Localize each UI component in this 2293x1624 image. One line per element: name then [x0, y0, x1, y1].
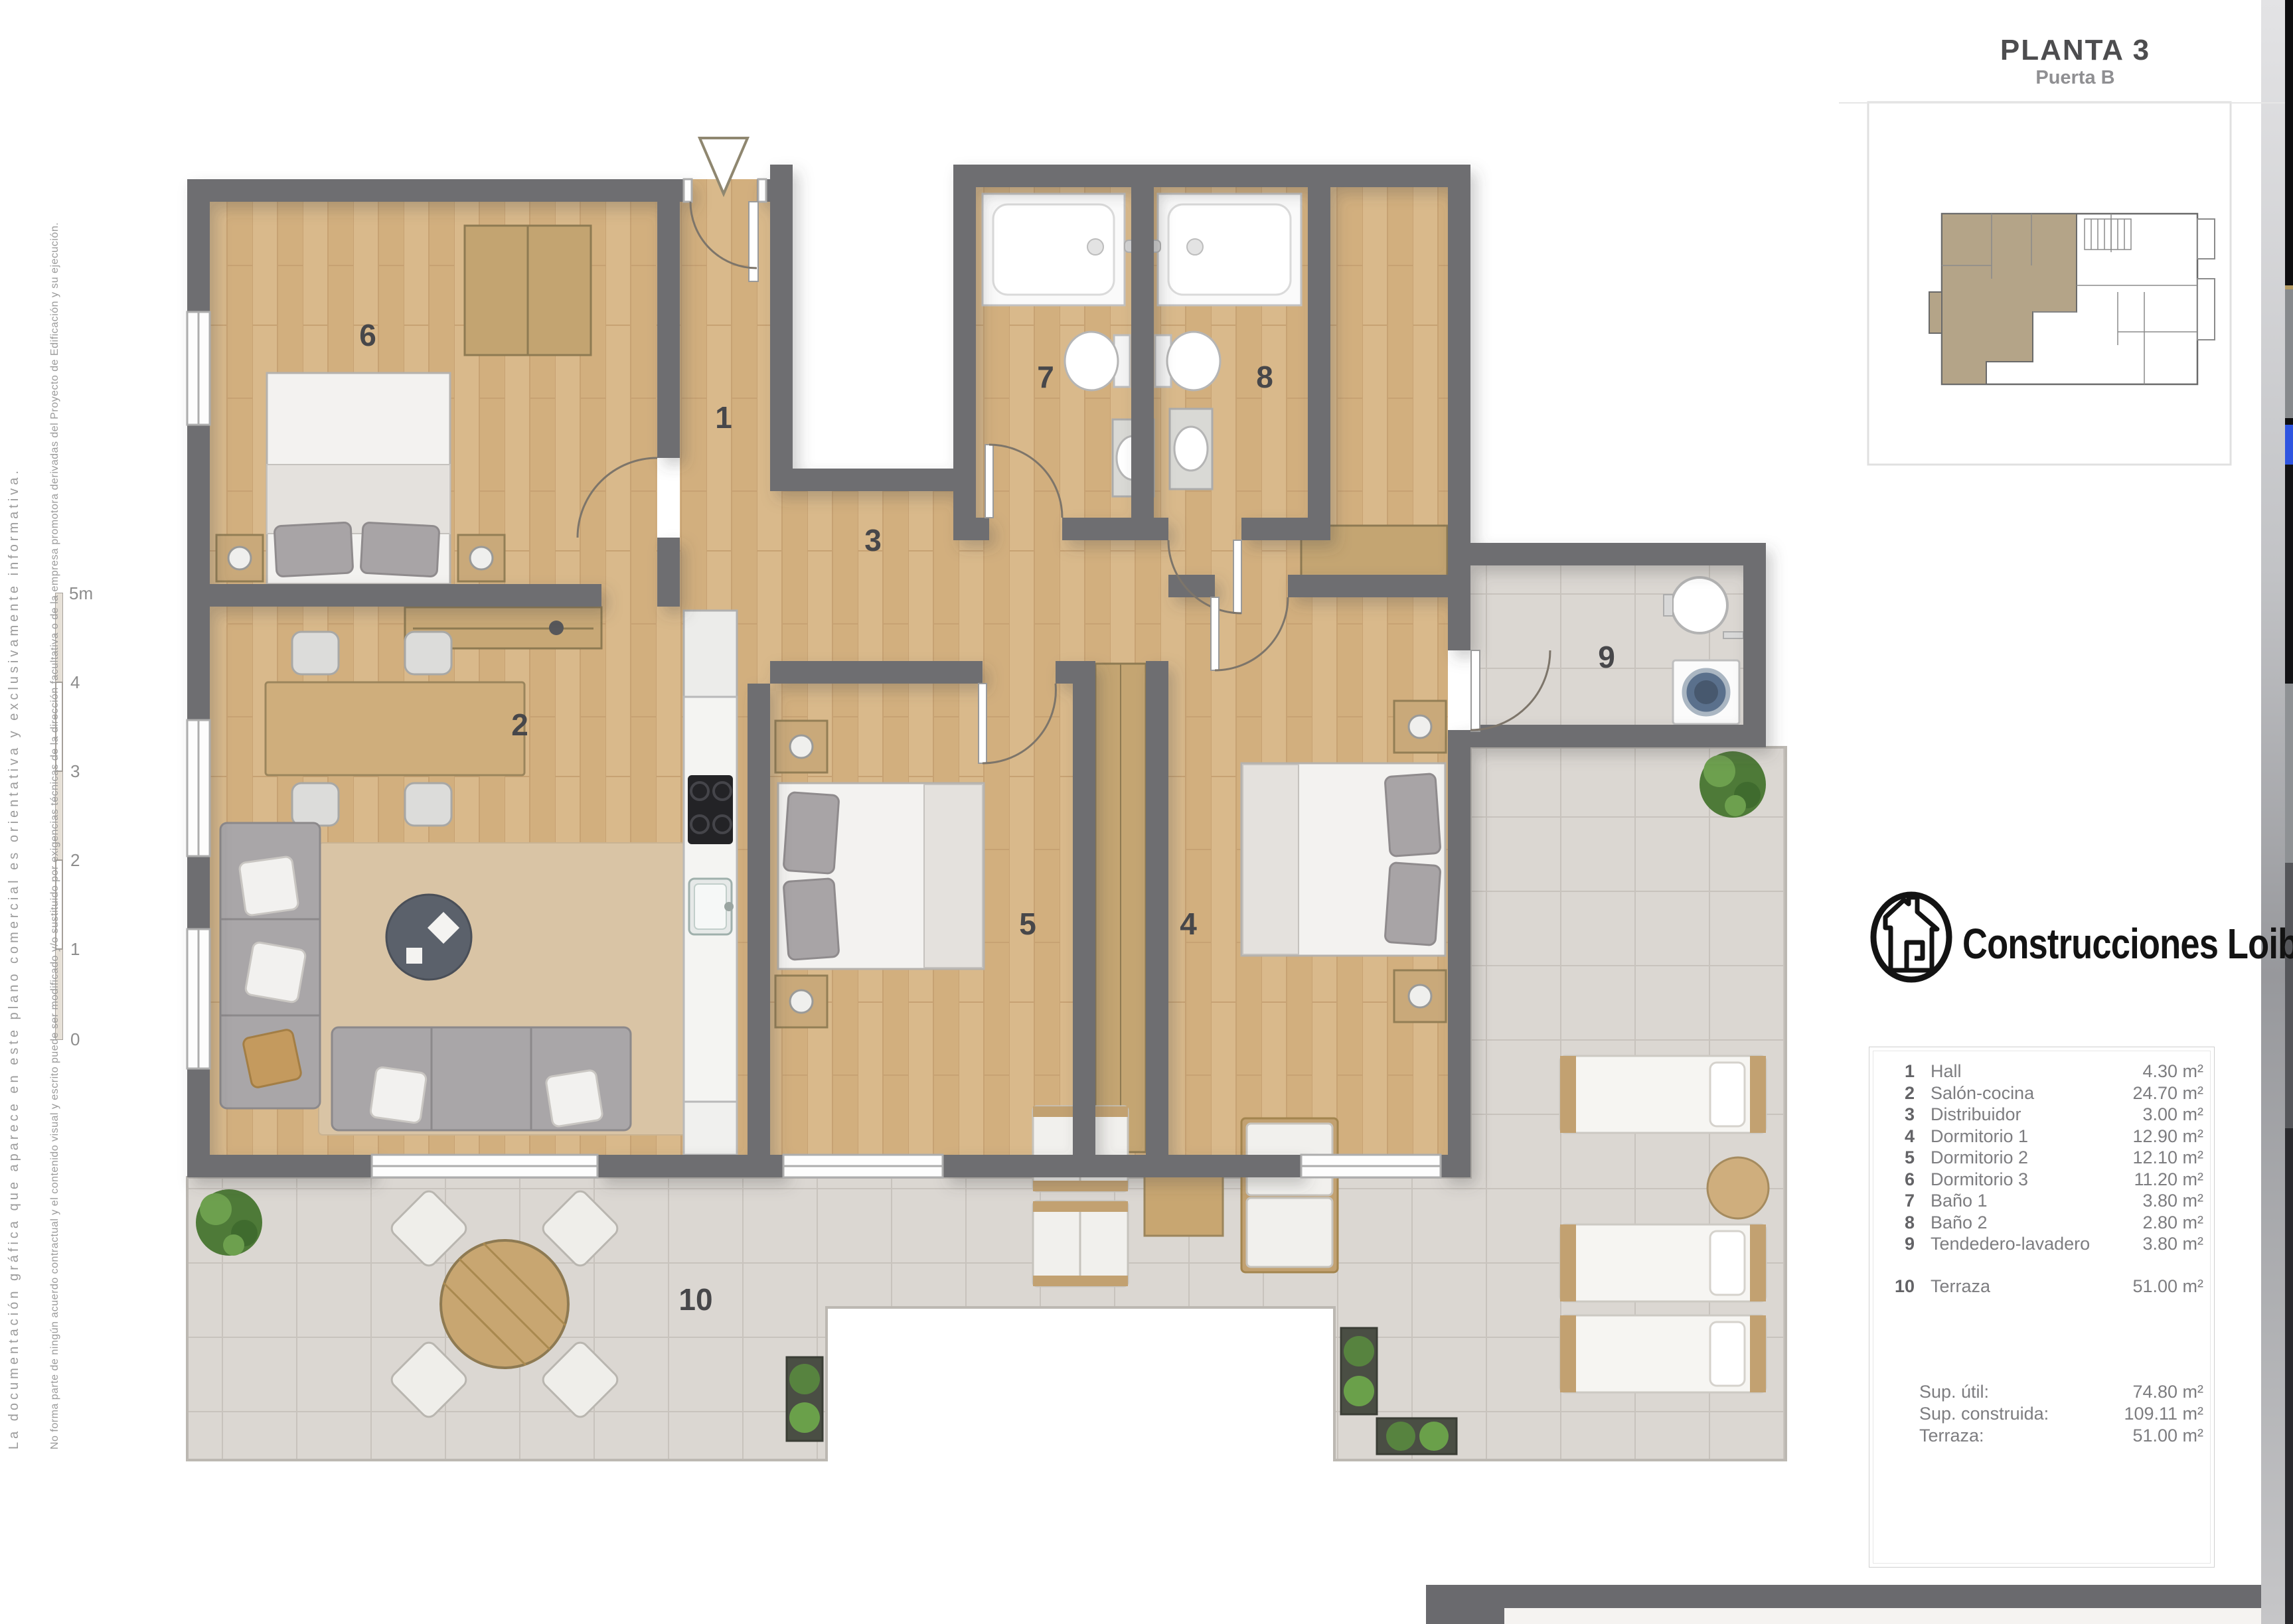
bedroom2-door-leaf	[979, 684, 987, 763]
legend-row-terraza: 10Terraza51.00 m²	[1888, 1276, 2203, 1297]
throw-pillow	[242, 1029, 302, 1088]
lamp	[228, 547, 251, 569]
room-number-bath2: 8	[1256, 360, 1273, 394]
legend-row-distribuidor: 3Distribuidor3.00 m²	[1888, 1104, 2203, 1126]
ruler-label-2: 2	[70, 850, 80, 870]
room-number-dormitorio2: 5	[1019, 907, 1036, 941]
bush-plant	[196, 1189, 262, 1256]
pillow	[1385, 773, 1441, 856]
right-edge-sliver	[2285, 0, 2293, 1624]
faucet	[724, 902, 734, 911]
room-number-dormitorio1: 4	[1180, 907, 1197, 941]
brand-logo-icon	[1873, 895, 1949, 980]
inset-location-map	[1868, 102, 2231, 465]
dining-chair	[292, 632, 339, 674]
total-sup-util: Sup. útil:74.80 m²	[1919, 1381, 2203, 1403]
sink-basin	[1174, 427, 1208, 471]
lamp	[470, 547, 493, 569]
legend-row-bano1: 7Baño 13.80 m²	[1888, 1190, 2203, 1212]
legend-row-salon: 2Salón-cocina24.70 m²	[1888, 1082, 2203, 1104]
bath2-door-leaf	[1233, 540, 1241, 613]
ruler-label-4: 4	[70, 672, 80, 692]
legend-row-dormitorio1: 4Dormitorio 112.90 m²	[1888, 1126, 2203, 1147]
lamp	[1409, 715, 1431, 738]
toilet	[1065, 332, 1118, 390]
disclaimer-line-1: La documentación gráfica que aparece en …	[7, 467, 22, 1449]
ruler-label-0: 0	[70, 1029, 80, 1049]
brand-name-wrap: Construcciones Loibe	[1962, 911, 2293, 984]
legend-row-dormitorio3: 6Dormitorio 311.20 m²	[1888, 1169, 2203, 1191]
planter	[787, 1357, 823, 1441]
bedroom1-door-leaf	[1211, 597, 1219, 670]
legend-row-tendedero: 9Tendedero-lavadero3.80 m²	[1888, 1233, 2203, 1255]
legend-box: 1Hall4.30 m² 2Salón-cocina24.70 m² 3Dist…	[1869, 1047, 2215, 1568]
room-number-bath1: 7	[1037, 360, 1054, 394]
throw-pillow	[239, 856, 299, 916]
legend-totals: Sup. útil:74.80 m² Sup. construida:109.1…	[1919, 1381, 2203, 1447]
page-subtitle: Puerta B	[1925, 66, 2225, 89]
dining-chair	[405, 632, 451, 674]
total-sup-construida: Sup. construida:109.11 m²	[1919, 1403, 2203, 1425]
door-jamb	[758, 179, 766, 202]
room-number-salon: 2	[511, 707, 528, 742]
dining-chair	[405, 783, 451, 826]
room-number-terraza: 10	[678, 1282, 712, 1317]
throw-pillow	[245, 942, 307, 1003]
bush-plant	[1700, 751, 1766, 818]
entrance-door-leaf	[749, 202, 758, 281]
sun-lounger	[1560, 1224, 1766, 1301]
room-number-dormitorio3: 6	[359, 318, 376, 352]
sun-lounger	[1560, 1056, 1766, 1133]
title-block: PLANTA 3 Puerta B	[1925, 35, 2225, 89]
bath1-door-leaf	[985, 445, 993, 518]
planter	[1377, 1418, 1457, 1454]
total-terraza: Terraza:51.00 m²	[1919, 1425, 2203, 1447]
room-number-hall: 1	[715, 400, 732, 435]
disclaimer-line-2: No forma parte de ningún acuerdo contrac…	[49, 222, 61, 1449]
dining-table	[266, 682, 524, 775]
side-table	[1707, 1157, 1769, 1218]
ruler-label-3: 3	[70, 761, 80, 781]
sun-lounger	[1560, 1315, 1766, 1392]
legend-row-bano2: 8Baño 22.80 m²	[1888, 1212, 2203, 1234]
lamp	[790, 735, 813, 758]
pillow	[783, 792, 839, 873]
throw-pillow	[546, 1070, 603, 1128]
title-divider	[1839, 102, 2285, 104]
house-icon	[1885, 897, 1937, 970]
ruler-label-5m: 5m	[69, 583, 93, 603]
laundry-door-leaf	[1471, 650, 1480, 731]
dining-chair	[292, 783, 339, 826]
pillow	[360, 522, 439, 577]
pillow	[274, 522, 353, 577]
drain	[1187, 239, 1203, 255]
toilet	[1167, 332, 1220, 390]
legend-row-dormitorio2: 5Dormitorio 212.10 m²	[1888, 1147, 2203, 1169]
legend-row-hall: 1Hall4.30 m²	[1888, 1061, 2203, 1082]
right-scroll-strip	[2261, 0, 2285, 1624]
ruler-label-1: 1	[70, 939, 80, 959]
planter	[1341, 1328, 1377, 1414]
scale-ruler: 5m 4 3 2 1 0	[56, 583, 93, 1049]
room-number-lavadero: 9	[1598, 640, 1615, 674]
page-title: PLANTA 3	[1925, 35, 2225, 66]
brand-name: Construcciones Loibe	[1962, 911, 2293, 977]
pillow	[783, 878, 839, 960]
door-jamb	[684, 179, 692, 202]
lamp	[1409, 985, 1431, 1007]
kitchen-appliance	[684, 1102, 737, 1155]
room-number-distribuidor: 3	[864, 523, 882, 557]
kitchen-tall-unit	[684, 611, 737, 697]
throw-pillow	[370, 1067, 427, 1124]
coffee-table	[386, 895, 471, 980]
legend-rows: 1Hall4.30 m² 2Salón-cocina24.70 m² 3Dist…	[1888, 1061, 2203, 1297]
floor-plan-page: 1 2 3 4 5 6 7 8 9 10 5m 4 3 2	[0, 0, 2293, 1624]
tv-knob	[549, 621, 564, 635]
pillow	[1385, 862, 1441, 945]
patio-void	[793, 165, 953, 469]
drain	[1087, 239, 1103, 255]
lamp	[790, 990, 813, 1013]
water-heater	[1672, 577, 1727, 633]
